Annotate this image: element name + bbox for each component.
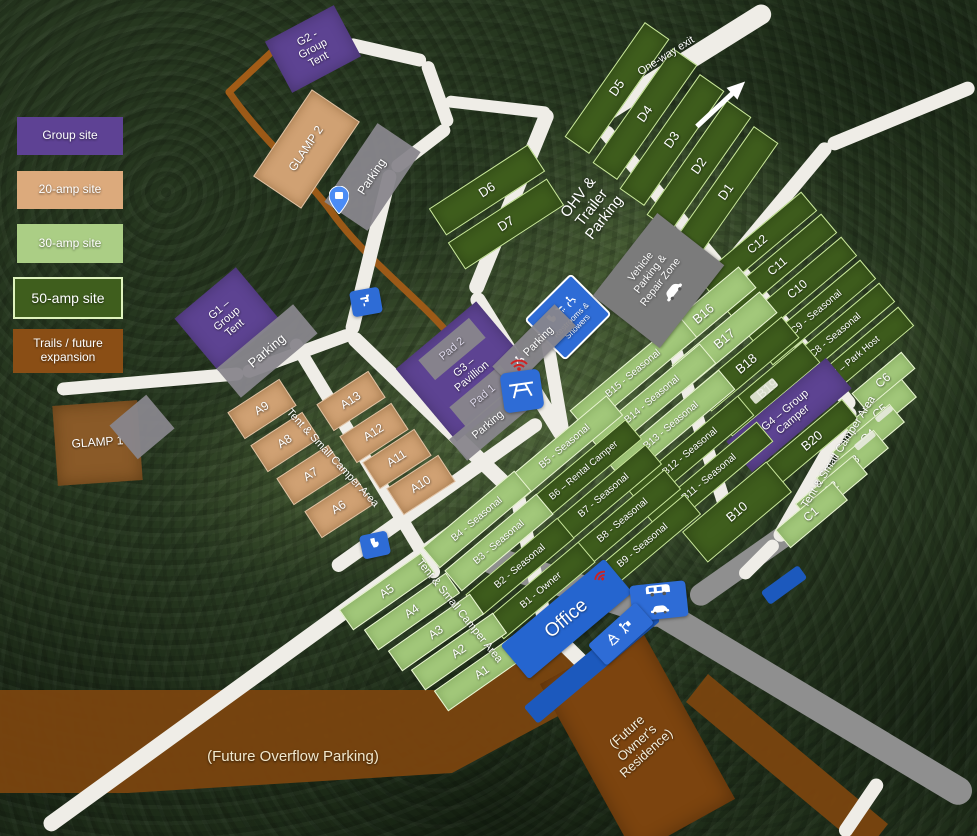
toilet-icon [367,535,382,555]
legend-label: Group site [42,129,97,143]
site-b18-label: B18 [732,351,759,377]
site-b17-label: B17 [710,326,737,352]
site-d1-label: D1 [715,181,736,203]
legend-item-30-amp-site: 30-amp site [17,224,123,263]
car-icon [649,600,671,620]
site-c12-label: C12 [744,232,770,256]
site-glamp2-label: GLAMP 2 [286,124,326,174]
site-g2-label: G2 - Group Tent [291,26,335,73]
site-a12-label: A12 [361,422,386,445]
label-future-overflow-parking-label: (Future Overflow Parking) [207,749,379,766]
wifi-icon [589,565,613,589]
legend-label: Trails / future expansion [33,337,103,365]
site-a1-label: A1 [472,662,492,681]
picnic-table-icon [506,377,537,406]
site-a4-label: A4 [402,601,422,620]
legend-item-trails-future: Trails / future expansion [13,329,123,373]
site-a6-label: A6 [329,498,349,517]
legend-item-20-amp-site: 20-amp site [17,171,123,209]
site-d2-label: D2 [688,155,709,177]
site-d3-label: D3 [661,129,682,151]
site-b10-label: B10 [723,499,750,525]
site-b16-label: B16 [689,301,716,327]
site-a10-label: A10 [408,474,433,497]
water-spigot-sign [349,287,383,318]
site-a11-label: A11 [385,448,409,470]
water-spigot-icon [358,292,375,312]
campground-map: D5D4D3D2D1D6D7C12C11C10C9 - SeasonalC8 -… [0,0,977,836]
site-a13-label: A13 [338,390,363,413]
site-a5-label: A5 [377,581,397,600]
site-a2-label: A2 [449,641,469,660]
label-future-overflow-parking: (Future Overflow Parking) [128,745,458,769]
parking-glamp2-label: Parking [355,156,389,197]
site-c10-label: C10 [784,277,810,301]
site-d6-label: D6 [476,179,498,200]
legend-label: 50-amp site [31,290,104,306]
legend-label: 20-amp site [39,183,102,197]
site-d7-label: D7 [495,213,517,234]
picnic-pavilion-sign [499,368,544,413]
legend-label: 30-amp site [39,237,102,251]
site-a3-label: A3 [426,622,446,641]
site-d4-label: D4 [634,103,655,125]
site-glamp1-label: GLAMP 1 [71,434,124,451]
legend-item-group-site: Group site [17,117,123,155]
site-g1-label: G1 – Group Tent [203,295,250,343]
legend-item-50-amp-site: 50-amp site [13,277,123,319]
map-pin-icon [329,186,349,219]
site-c11-label: C11 [765,254,790,278]
site-a7-label: A7 [301,465,321,484]
site-a8-label: A8 [275,432,295,451]
